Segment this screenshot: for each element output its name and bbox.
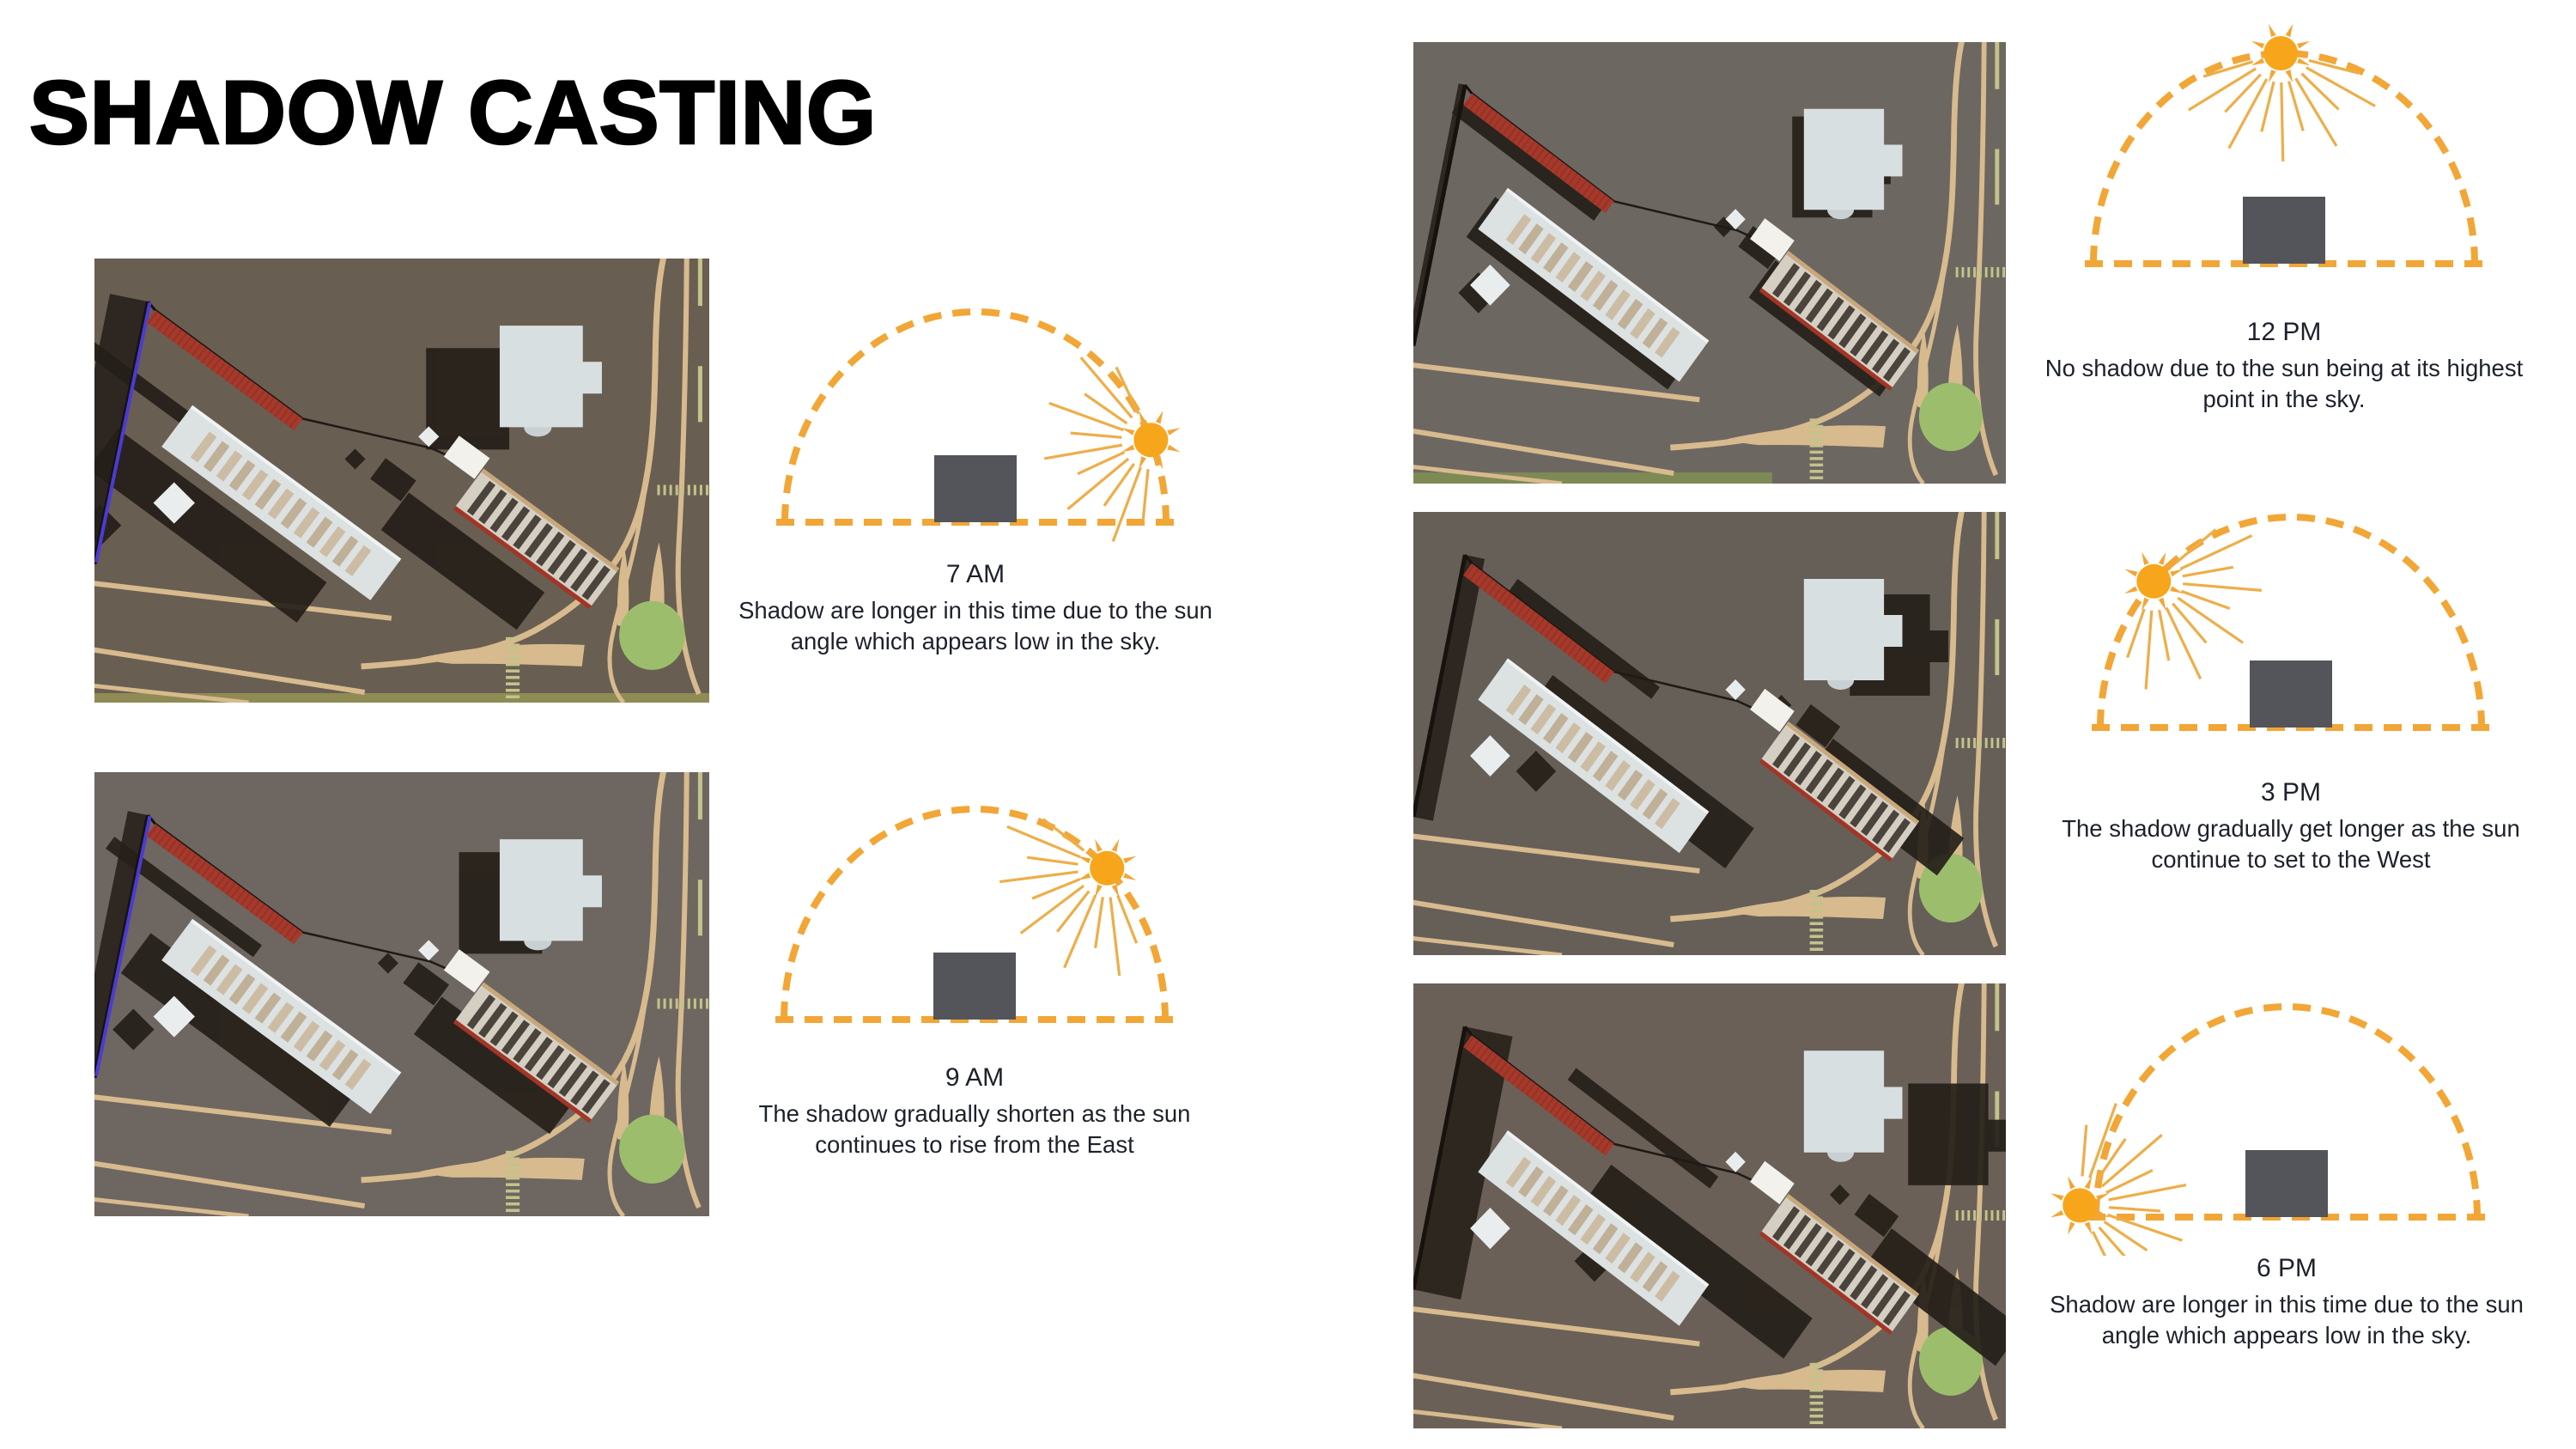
- building-block: [2245, 1150, 2328, 1217]
- sun-diagram-12pm: [2018, 10, 2550, 302]
- sun-diagram-9am: [708, 766, 1241, 1058]
- site-render-9am: [94, 772, 709, 1216]
- panel-text-3pm: 3 PM The shadow gradually get longer as …: [2025, 778, 2557, 875]
- time-label: 9 AM: [708, 1063, 1241, 1093]
- panel-text-6pm: 6 PM Shadow are longer in this time due …: [2020, 1254, 2553, 1351]
- site-render-7am: [94, 259, 709, 703]
- tree: [619, 601, 685, 670]
- sun-diagram-6pm: [2020, 964, 2553, 1256]
- sun-icon: [999, 819, 1136, 976]
- site-render-6pm: [1413, 983, 2006, 1428]
- caption: The shadow gradually get longer as the s…: [2025, 813, 2557, 875]
- page-title: SHADOW CASTING: [29, 62, 877, 165]
- sun-diagram-7am-canvas: [709, 269, 1242, 561]
- time-label: 6 PM: [2020, 1254, 2553, 1283]
- site-render-7am-canvas: [94, 259, 709, 703]
- site-render-3pm-canvas: [1413, 512, 2006, 955]
- sun-diagram-7am: [709, 269, 1242, 561]
- sun-icon: [2124, 530, 2262, 690]
- building-block: [933, 953, 1016, 1020]
- building-block: [2243, 197, 2325, 264]
- panel-text-12pm: 12 PM No shadow due to the sun being at …: [2018, 318, 2550, 415]
- sun-diagram-12pm-canvas: [2018, 10, 2550, 302]
- caption: Shadow are longer in this time due to th…: [2020, 1289, 2553, 1351]
- site-render-3pm: [1413, 512, 2006, 955]
- panel-text-9am: 9 AM The shadow gradually shorten as the…: [708, 1063, 1241, 1160]
- time-label: 7 AM: [709, 560, 1242, 589]
- time-label: 12 PM: [2018, 318, 2550, 347]
- time-label: 3 PM: [2025, 778, 2557, 807]
- building-block: [934, 455, 1017, 522]
- ground: [1413, 512, 2006, 955]
- site-render-12pm: [1413, 42, 2006, 484]
- sun-icon: [1044, 357, 1180, 541]
- caption: Shadow are longer in this time due to th…: [709, 595, 1242, 657]
- sun-diagram-6pm-canvas: [2020, 964, 2553, 1256]
- panel-text-7am: 7 AM Shadow are longer in this time due …: [709, 560, 1242, 657]
- tree: [1919, 382, 1983, 451]
- building-block: [2250, 661, 2332, 728]
- site-render-9am-canvas: [94, 772, 709, 1216]
- site-render-12pm-canvas: [1413, 42, 2006, 484]
- tree: [619, 1115, 685, 1184]
- sun-diagram-9am-canvas: [708, 766, 1241, 1058]
- site-render-6pm-canvas: [1413, 983, 2006, 1428]
- sun-diagram-3pm: [2025, 474, 2557, 766]
- caption: The shadow gradually shorten as the sun …: [708, 1099, 1241, 1160]
- sun-diagram-3pm-canvas: [2025, 474, 2557, 766]
- caption: No shadow due to the sun being at its hi…: [2018, 353, 2550, 415]
- sun-icon: [2189, 24, 2375, 161]
